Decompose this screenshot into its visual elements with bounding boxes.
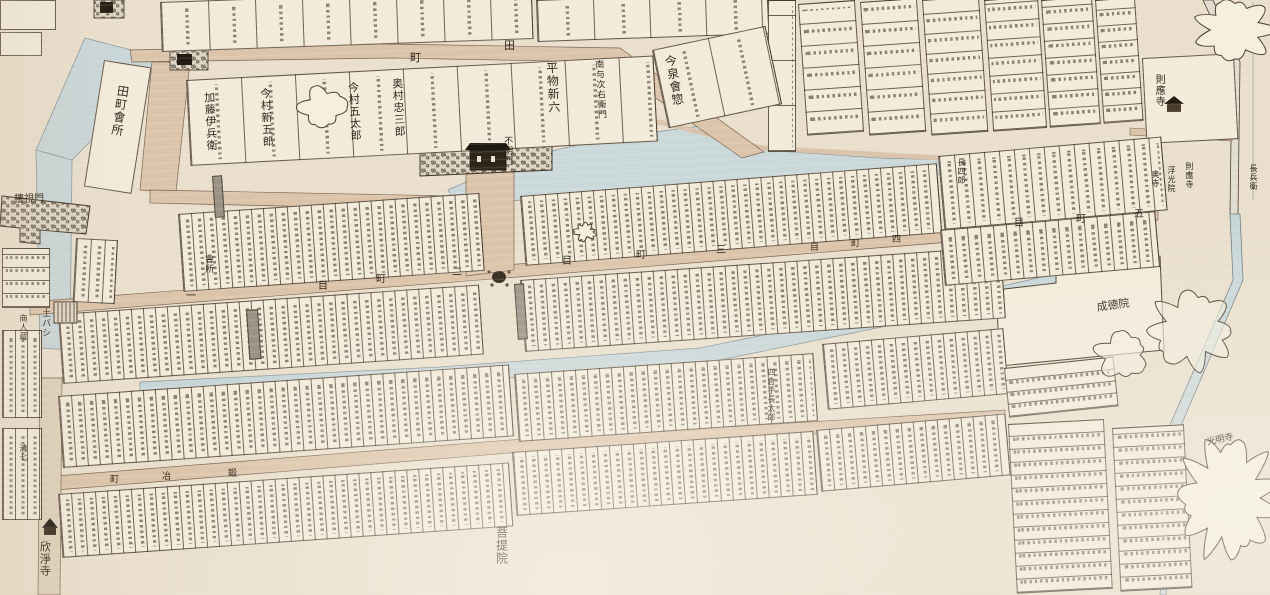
parcel-block: [822, 328, 1009, 410]
parcel-block: [816, 413, 1011, 491]
map-label: 今村新五郎: [258, 87, 273, 148]
parcel-block: [520, 163, 942, 266]
parcel-ink-text: [163, 0, 530, 47]
parcel-ink-text: [863, 4, 922, 130]
parcel-ink-text: [925, 2, 985, 130]
parcel-block: [1008, 419, 1113, 594]
parcel-ink-text: [523, 253, 1002, 347]
parcel-block: [2, 428, 42, 520]
map-label: 目: [810, 243, 819, 253]
map-label: 一: [186, 291, 196, 302]
parcel-block: [512, 431, 818, 516]
parcel-ink-text: [523, 169, 938, 260]
map-label: 奥寺: [1150, 170, 1159, 188]
parcel-ink-text: [944, 217, 1157, 280]
map-label: 平物新六: [544, 61, 560, 114]
temple-gate-kinjoji-icon: [42, 518, 58, 535]
map-label: 五: [1134, 209, 1144, 220]
map-label: 三: [716, 245, 726, 256]
map-label: 樓視門: [14, 194, 44, 205]
parcel-block: [186, 56, 658, 166]
parcel-block: [2, 330, 42, 418]
parcel-ink-text: [826, 334, 1006, 404]
parcel-block: [58, 462, 513, 557]
map-label: 目: [1014, 218, 1024, 229]
parcel-block: [1041, 0, 1101, 128]
parcel-ink-text: [539, 0, 766, 37]
tree-cloud: [1147, 290, 1231, 373]
parcel-ink-text: [1011, 425, 1109, 588]
map-label: 冶: [162, 472, 171, 482]
map-label: 町: [410, 52, 421, 64]
map-label: 町: [110, 475, 119, 485]
map-label: 町: [376, 274, 386, 285]
map-label: 浮光院: [1166, 166, 1175, 193]
parcel-block: [860, 0, 926, 136]
parcel-block: [2, 248, 50, 308]
map-lane: [212, 175, 225, 218]
tree-cloud: [1178, 439, 1270, 559]
map-label: 欣淨寺: [38, 541, 50, 577]
map-label: 不明門: [502, 136, 512, 166]
well-icon: [487, 270, 510, 286]
map-label: 長四郎: [956, 158, 965, 185]
stone-gate-northwest: [94, 0, 124, 18]
parcel-ink-text: [515, 437, 814, 511]
parcel-block: [58, 364, 514, 467]
parcel-block: [922, 0, 988, 136]
parcel-ink-text: [987, 2, 1043, 126]
map-label: 四倉手長太郎: [766, 368, 775, 422]
map-label: 今村五太郎: [346, 81, 361, 142]
parcel-ink-text: [61, 291, 480, 379]
parcel-block: [0, 0, 56, 30]
map-label: 田: [504, 40, 515, 52]
map-label: 町: [851, 239, 860, 249]
parcel-block: [58, 285, 484, 384]
map-label: 町: [636, 250, 646, 261]
map-label: 商人蔵: [18, 314, 27, 341]
parcel-block: [0, 32, 42, 56]
parcel-block: [1095, 0, 1144, 124]
map-label: 光明寺: [1206, 432, 1235, 447]
map-canvas: 田町會所加藤伊兵衛今村新五郎今村五太郎奥村忠三郎平物新六南与次右衛門今泉會惣田町…: [0, 0, 1270, 595]
map-label: 成德院: [1096, 297, 1130, 314]
map-label: 菩提院: [494, 526, 507, 565]
map-label: 長兵衛: [1248, 164, 1257, 191]
map-label: 加藤伊兵衛: [202, 91, 217, 152]
parcel-ink-text: [1044, 3, 1097, 123]
map-label: 二: [452, 267, 462, 278]
map-label: 會所: [203, 254, 213, 274]
parcel-ink-text: [5, 336, 39, 413]
parcel-ink-text: [942, 143, 1165, 225]
parcel-ink-text: [61, 371, 510, 463]
canal-diagonal-east: [1170, 214, 1243, 428]
parcel-block: [160, 0, 534, 52]
parcel-ink-text: [1008, 363, 1116, 413]
stone-gate-northwest-2: [170, 50, 208, 70]
map-label: 則應寺: [1153, 74, 1164, 107]
map-label: 清七: [18, 444, 27, 462]
parcel-ink-text: [61, 469, 510, 553]
map-label: 鍛: [228, 469, 237, 479]
tree-cloud: [1195, 0, 1270, 61]
map-label: 則應寺: [1184, 162, 1193, 189]
map-label: 四: [892, 235, 901, 245]
map-label: 町: [1076, 214, 1086, 225]
map-label: 土バシ: [40, 308, 50, 338]
parcel-ink-text: [76, 244, 115, 299]
parcel-ink-text: [1098, 3, 1140, 118]
parcel-block: [73, 238, 118, 304]
parcel-ink-text: [820, 420, 1008, 487]
parcel-block: [1004, 357, 1119, 418]
map-label: 目: [318, 281, 328, 292]
parcel-block: [798, 0, 864, 136]
parcel-ink-text: [1115, 430, 1189, 586]
parcel-ink-text: [801, 6, 860, 130]
parcel-block: [984, 0, 1047, 132]
parcel-ink-text: [181, 199, 481, 286]
map-label: 目: [562, 256, 572, 267]
map-label: 奥村忠三郎: [390, 77, 405, 138]
parcel-ink-text: [5, 254, 47, 303]
parcel-block: [1112, 424, 1192, 592]
